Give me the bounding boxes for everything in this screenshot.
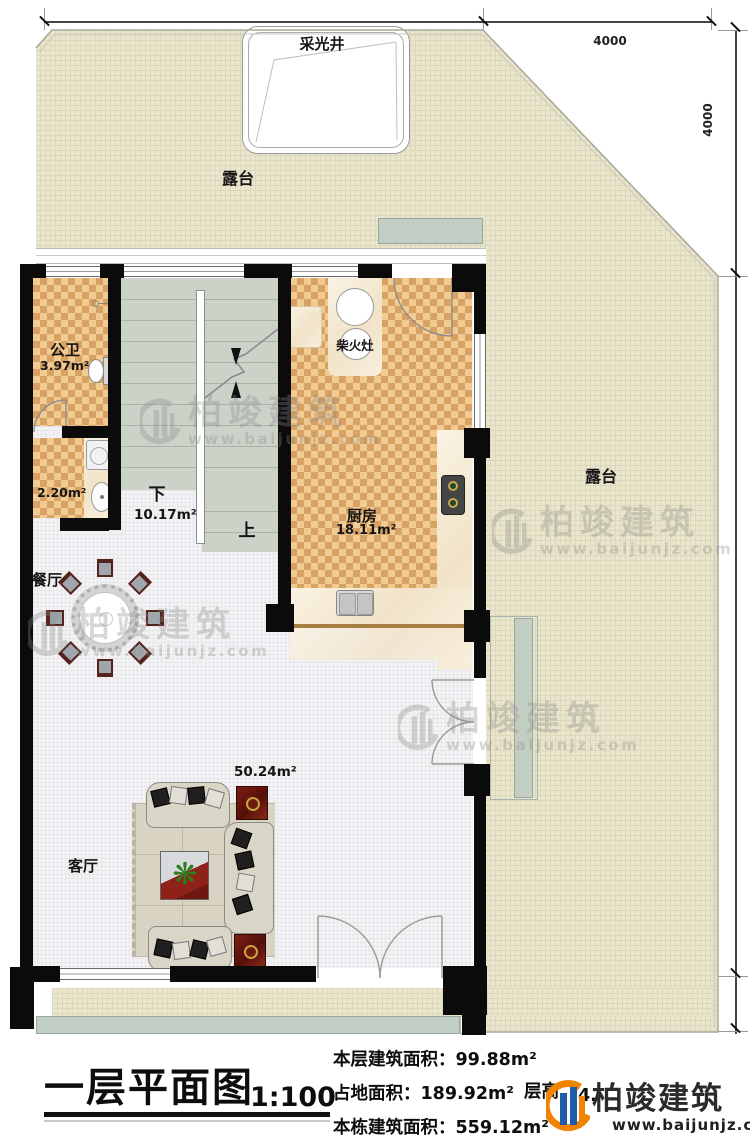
floor-plan-canvas: 7600 4000 4000 11700 800 [0, 0, 750, 1147]
stat-value: 99.88m² [456, 1050, 537, 1070]
wall [170, 966, 316, 982]
window [124, 266, 244, 277]
kitchen-counter-bottom [290, 588, 472, 626]
stat-building-area: 本栋建筑面积：559.12m² [333, 1120, 549, 1138]
dim-ext-line [718, 30, 748, 31]
stat-value: 189.92m² [421, 1084, 514, 1104]
pillow [169, 786, 188, 805]
wall-jog [462, 1013, 486, 1035]
wall-bathroom-bottom [62, 426, 108, 438]
brand-url: www.baijunjz.com [612, 1118, 750, 1133]
label-terrace-top: 露台 [214, 170, 262, 188]
wall-left [20, 264, 33, 977]
gas-stove [441, 475, 465, 515]
window [292, 266, 358, 277]
wall-stairs [278, 264, 291, 604]
label-skylight: 采光井 [296, 36, 348, 53]
basin-drain [100, 495, 104, 499]
washer-drum [90, 447, 108, 465]
kitchen-bar-strip [290, 628, 472, 660]
stat-footprint-area: 占地面积：189.92m² [333, 1086, 514, 1104]
wall-laundry-bottom [60, 518, 109, 531]
dim-ext-line [718, 276, 748, 277]
stair-tread [202, 511, 278, 512]
wall-pier [266, 604, 294, 632]
terrace-door-step [514, 618, 533, 798]
dim-right-upper: 4000 [701, 90, 715, 150]
wall-right [474, 458, 486, 610]
title-underline-shadow [44, 1120, 330, 1122]
towel-hook [92, 300, 99, 307]
label-stairs-up: 上 [238, 522, 256, 541]
dim-ext-line [718, 976, 748, 977]
stat-floor-area: 本层建筑面积：99.88m² [333, 1052, 537, 1070]
label-stairs-down: 下 [148, 486, 166, 505]
wall-pier [464, 764, 490, 796]
label-stairs-area: 10.17m² [134, 508, 186, 523]
wall-right [474, 292, 486, 334]
kitchen-door-step [378, 218, 483, 244]
wood-stove-burner [336, 288, 374, 326]
label-terrace-right: 露台 [577, 468, 625, 486]
brand-name: 柏竣建筑 [592, 1084, 724, 1115]
label-laundry-area: 2.20m² [37, 486, 83, 500]
wall-pier [464, 428, 490, 458]
pillow [153, 938, 173, 958]
dim-top-right: 4000 [580, 34, 640, 48]
entry-step [36, 1016, 460, 1034]
pillow [234, 850, 254, 870]
kitchen-prep-counter [288, 306, 322, 348]
dim-line-right [735, 30, 737, 1034]
stair-rail [196, 290, 205, 544]
label-kitchen-area: 18.11m² [336, 524, 388, 538]
page-title: 一层平面图 [44, 1068, 254, 1108]
wall [358, 264, 392, 278]
window [46, 266, 100, 277]
towel-hook-arm [99, 303, 108, 304]
wall-bathroom [108, 264, 121, 530]
label-wood-stove: 柴火灶 [330, 339, 380, 353]
label-living-area: 50.24m² [234, 765, 288, 780]
wall-right [474, 796, 486, 966]
burner [448, 498, 458, 508]
plan-scale: 1:100 [250, 1084, 336, 1111]
wall [20, 966, 60, 982]
brand-logo-icon [546, 1076, 590, 1138]
sink-basin [339, 593, 356, 615]
dim-line-top [44, 21, 712, 23]
wall-jog [443, 975, 487, 1015]
dim-ext-line [718, 1031, 748, 1032]
window [60, 968, 170, 980]
stat-value: 559.12m² [456, 1118, 549, 1138]
stat-label: 本栋建筑面积： [333, 1118, 456, 1138]
wall-pier [464, 610, 490, 642]
stat-label: 占地面积： [333, 1084, 421, 1104]
dining-chair [146, 610, 164, 626]
porch-strip [52, 988, 712, 1016]
dining-chair [97, 559, 113, 577]
side-table [236, 786, 268, 820]
wall-right [474, 642, 486, 678]
pillow [187, 786, 206, 805]
dining-chair [97, 659, 113, 677]
plant: ❋ [166, 856, 204, 894]
title-underline [44, 1112, 330, 1117]
dining-chair [46, 610, 64, 626]
stat-label: 本层建筑面积： [333, 1050, 456, 1070]
pillow [172, 941, 191, 960]
washing-machine [86, 440, 110, 470]
wall [452, 264, 486, 292]
burner [448, 481, 458, 491]
label-bathroom-area: 3.97m² [40, 359, 86, 373]
table-centerpiece [99, 612, 113, 626]
label-bathroom: 公卫 [42, 342, 88, 359]
toilet-bowl [88, 359, 104, 383]
sink-basin [357, 593, 373, 615]
label-dining: 餐厅 [24, 572, 70, 589]
pillow [236, 873, 256, 893]
table-medallion [244, 945, 258, 959]
eave-band-top [36, 248, 486, 264]
table-medallion [246, 797, 260, 811]
kitchen-sink [336, 590, 374, 616]
window [474, 334, 486, 428]
label-living: 客厅 [60, 858, 106, 875]
side-table [234, 934, 266, 968]
